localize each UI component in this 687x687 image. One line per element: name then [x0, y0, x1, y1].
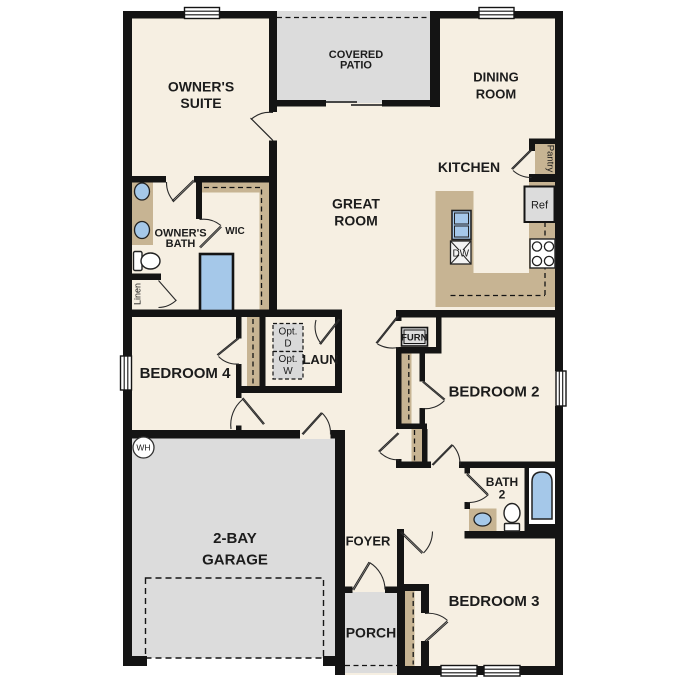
svg-text:ROOM: ROOM [476, 86, 516, 101]
svg-text:KITCHEN: KITCHEN [438, 159, 500, 175]
svg-text:LAUN: LAUN [302, 352, 338, 367]
svg-text:Linen: Linen [133, 283, 143, 305]
svg-text:BEDROOM 2: BEDROOM 2 [449, 384, 540, 401]
svg-text:GREAT: GREAT [332, 196, 380, 212]
svg-text:2-BAY: 2-BAY [213, 530, 257, 547]
svg-text:2: 2 [499, 488, 506, 502]
svg-text:DW: DW [452, 249, 469, 260]
svg-text:GARAGE: GARAGE [202, 552, 268, 569]
svg-text:D: D [284, 339, 291, 350]
svg-text:FURN: FURN [401, 333, 428, 344]
svg-text:PORCH: PORCH [346, 625, 397, 641]
svg-text:SUITE: SUITE [180, 95, 221, 111]
svg-text:Ref: Ref [531, 200, 549, 212]
svg-text:Opt.: Opt. [279, 327, 298, 338]
svg-text:WH: WH [136, 443, 150, 453]
svg-text:Pantry: Pantry [545, 145, 556, 173]
svg-text:OWNER'S: OWNER'S [168, 79, 234, 95]
svg-text:W: W [283, 366, 293, 377]
svg-text:PATIO: PATIO [340, 60, 372, 72]
svg-text:FOYER: FOYER [346, 534, 391, 549]
svg-text:BEDROOM 4: BEDROOM 4 [140, 365, 232, 382]
svg-text:BEDROOM 3: BEDROOM 3 [449, 593, 540, 610]
svg-text:DINING: DINING [473, 70, 519, 85]
svg-text:Opt.: Opt. [279, 354, 298, 365]
svg-text:WIC: WIC [225, 226, 244, 237]
svg-text:BATH: BATH [166, 238, 196, 250]
svg-text:ROOM: ROOM [334, 213, 378, 229]
